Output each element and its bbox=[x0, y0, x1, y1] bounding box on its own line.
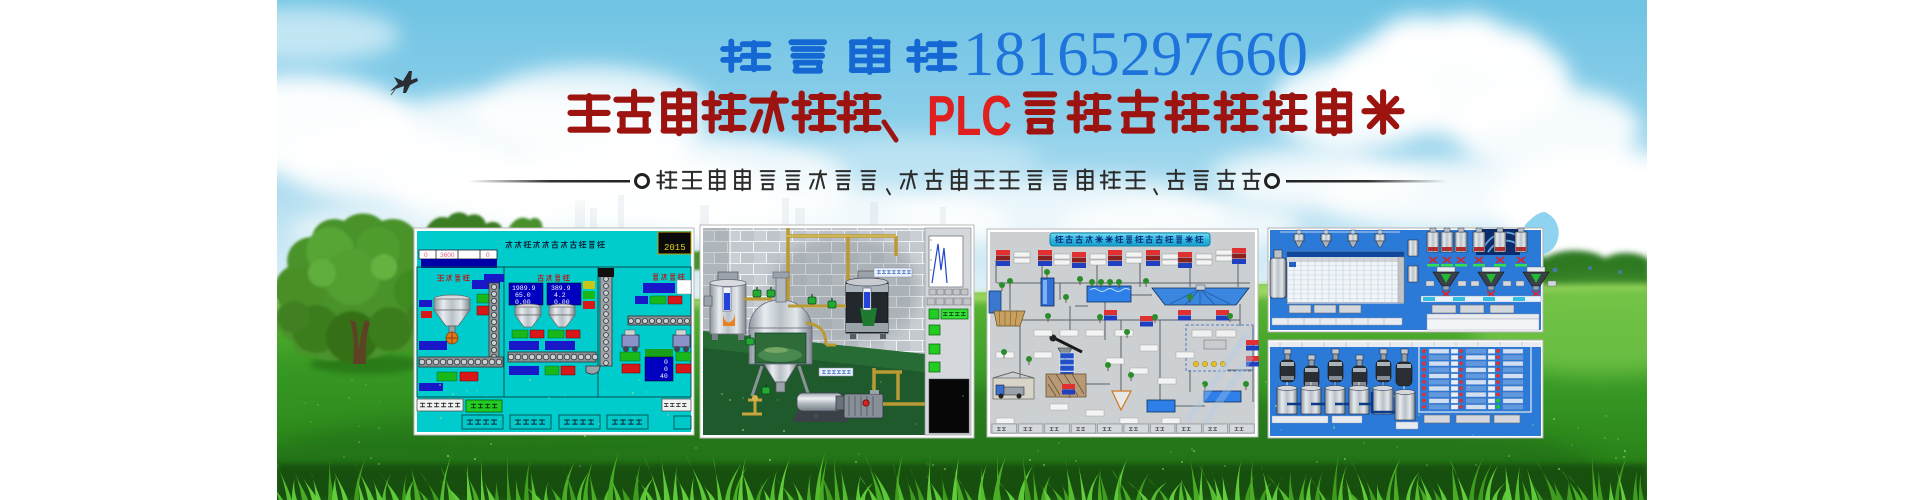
svg-text:0: 0 bbox=[664, 366, 668, 373]
svg-text:PLC: PLC bbox=[927, 84, 1012, 148]
svg-text:3600: 3600 bbox=[440, 252, 455, 259]
svg-text:389.9: 389.9 bbox=[551, 285, 571, 292]
svg-text:65.0: 65.0 bbox=[515, 292, 531, 299]
svg-text:40: 40 bbox=[660, 373, 668, 380]
svg-text:0: 0 bbox=[424, 252, 428, 259]
svg-text:0: 0 bbox=[486, 252, 490, 259]
svg-text:0: 0 bbox=[664, 359, 668, 366]
svg-text:1989.9: 1989.9 bbox=[512, 285, 536, 292]
svg-text:2015: 2015 bbox=[664, 243, 686, 253]
svg-text:18165297660: 18165297660 bbox=[963, 19, 1308, 89]
svg-text:4.2: 4.2 bbox=[554, 292, 566, 299]
